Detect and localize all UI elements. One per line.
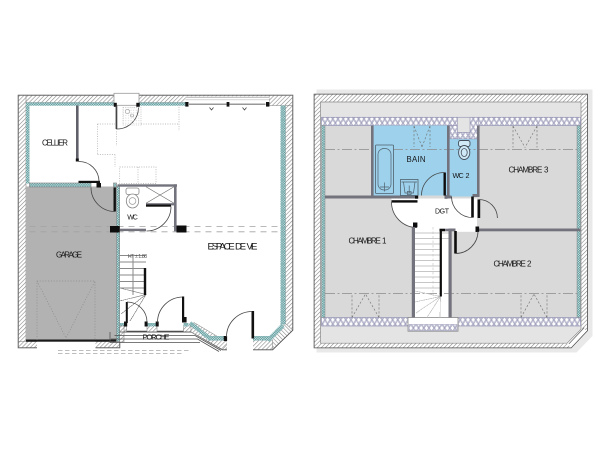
svg-text:DGT: DGT [435,209,450,216]
svg-text:CHAMBRE 2: CHAMBRE 2 [494,260,533,269]
svg-text:WC 2: WC 2 [453,171,470,180]
svg-text:CELLIER: CELLIER [42,138,68,147]
svg-text:CHAMBRE 1: CHAMBRE 1 [349,237,388,246]
svg-text:CHAMBRE 3: CHAMBRE 3 [509,166,550,175]
svg-text:WC: WC [127,214,138,221]
svg-text:BAIN: BAIN [407,155,426,164]
svg-text:GARAGE: GARAGE [56,250,82,259]
svg-text:PORCHE: PORCHE [143,332,170,341]
svg-text:ESPACE DE VIE: ESPACE DE VIE [208,242,258,253]
svg-text:HT ± 1.80: HT ± 1.80 [128,254,148,260]
